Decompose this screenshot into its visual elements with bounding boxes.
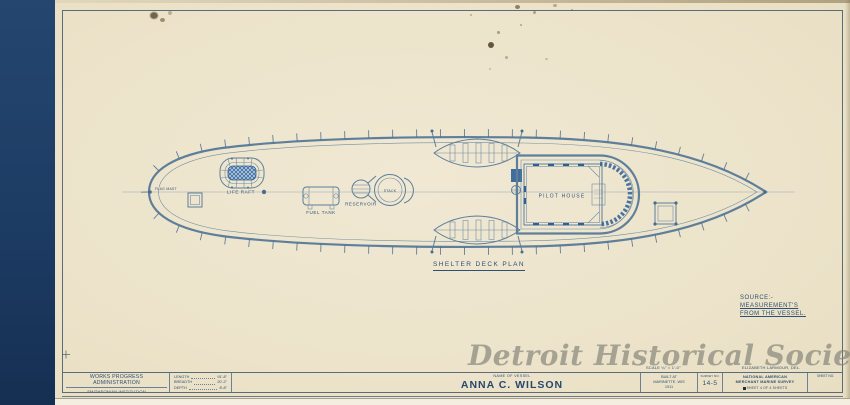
sheet-no-label: SHEET NO. xyxy=(808,374,843,378)
delineator-credit: ELIZABETH LARMOUR, DEL. xyxy=(742,365,801,370)
blueprint-scan: FLAG MAST LIFE RAFT FUEL TANK RESERVOIR … xyxy=(0,0,850,405)
dim-value: 8'-8" xyxy=(219,386,227,391)
deck-plan-drawing: FLAG MAST LIFE RAFT FUEL TANK RESERVOIR … xyxy=(0,0,850,405)
built-at-year: 1911 xyxy=(641,385,697,390)
dim-leader xyxy=(189,389,218,390)
registration-mark xyxy=(62,351,70,359)
reservoir-label: RESERVOIR xyxy=(345,202,377,207)
source-note: SOURCE:- MEASUREMENT'S FROM THE VESSEL. xyxy=(740,294,806,318)
lifeboat-upper xyxy=(431,130,524,168)
vessel-name-label: NAME OF VESSEL xyxy=(370,374,654,378)
survey-cell: SURVEY NO. 14-5 xyxy=(697,373,722,392)
source-note-line: MEASUREMENT'S xyxy=(740,302,806,310)
agency-name: WORKS PROGRESS ADMINISTRATION xyxy=(66,374,167,388)
dim-leader xyxy=(194,384,215,385)
dim-label: DEPTH xyxy=(174,386,187,391)
survey-no-value: 14-5 xyxy=(698,380,722,387)
stack-label: STACK xyxy=(384,189,397,193)
agency-institution: SMITHSONIAN INSTITUTION xyxy=(64,389,169,392)
dim-leader xyxy=(191,378,215,379)
survey-no-label: SURVEY NO. xyxy=(698,374,722,378)
stern-point xyxy=(763,190,767,194)
plan-title: SHELTER DECK PLAN xyxy=(433,261,525,271)
agency-cell: WORKS PROGRESS ADMINISTRATION SMITHSONIA… xyxy=(64,373,170,392)
stem-point xyxy=(148,190,152,194)
sheet-no-cell: SHEET NO. xyxy=(807,373,843,392)
source-note-line: FROM THE VESSEL. xyxy=(740,310,806,318)
built-at-cell: BUILT AT MARINETTE, WIS 1911 xyxy=(640,373,697,392)
dimensions-cell: LENGTH 91'-8" BREADTH 20'-2" DEPTH 8'-8" xyxy=(170,373,232,392)
title-block-bottom-rule xyxy=(62,396,843,397)
survey-org-line: MERCHANT MARINE SURVEY xyxy=(723,380,807,385)
pilot-house-label: PILOT HOUSE xyxy=(539,194,586,200)
survey-org-cell: NATIONAL AMERICAN MERCHANT MARINE SURVEY… xyxy=(722,373,807,392)
scale-note: SCALE ¼" = 1'-0" xyxy=(646,365,681,370)
bow-hatch xyxy=(188,193,202,207)
sheet-count-line: SHEET 4 OF 4 SHEETS xyxy=(723,386,807,391)
flag-mast-label: FLAG MAST xyxy=(155,187,177,191)
life-raft xyxy=(220,157,264,188)
life-raft-label: LIFE RAFT xyxy=(227,190,255,195)
title-block: WORKS PROGRESS ADMINISTRATION SMITHSONIA… xyxy=(62,372,843,393)
fuel-tank xyxy=(303,187,339,209)
paper-bottom-edge xyxy=(55,398,850,405)
stern-hatch xyxy=(653,201,677,225)
reservoir xyxy=(352,176,376,202)
dimension-row: DEPTH 8'-8" xyxy=(174,386,227,391)
paper-right-edge xyxy=(845,0,850,405)
sheet-bullet xyxy=(743,387,746,390)
fuel-tank-label: FUEL TANK xyxy=(306,210,336,215)
vessel-cell: NAME OF VESSEL ANNA C. WILSON xyxy=(370,373,654,392)
source-note-line: SOURCE:- xyxy=(740,294,806,302)
mast-step xyxy=(262,190,266,194)
sheet-count-text: SHEET 4 OF 4 SHEETS xyxy=(747,386,788,390)
vessel-name: ANNA C. WILSON xyxy=(370,379,654,391)
